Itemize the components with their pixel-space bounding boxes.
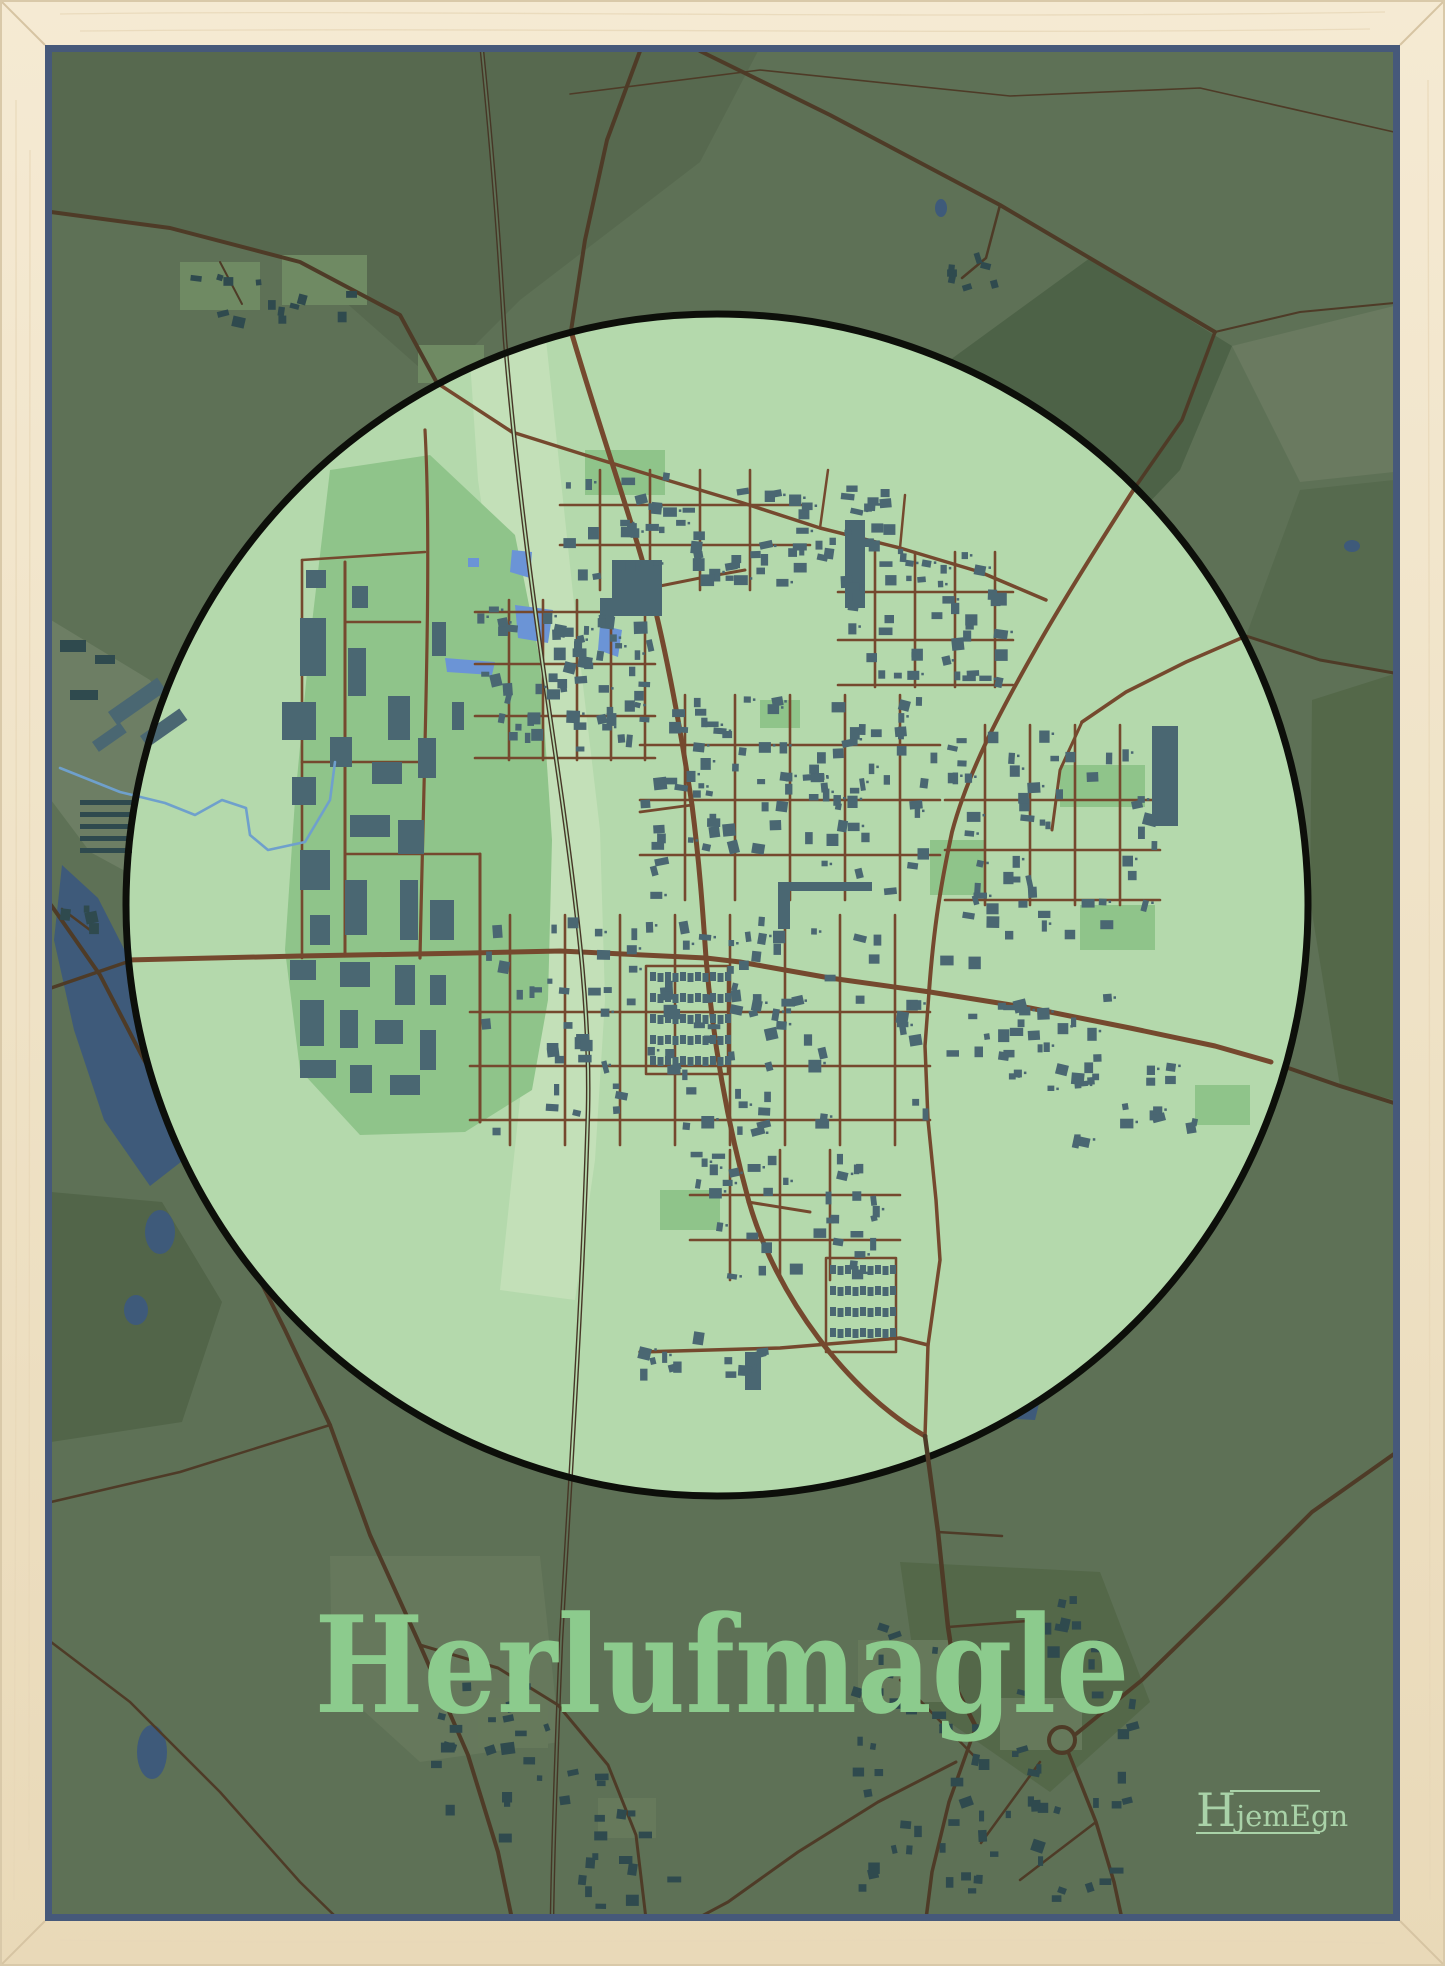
framed-map-poster: Herlufmagle HjemEgn: [0, 0, 1445, 1966]
logo-initial: H: [1196, 1783, 1236, 1837]
poster-title: Herlufmagle: [315, 1586, 1130, 1744]
logo-rest: jemEgn: [1233, 1799, 1348, 1833]
map-canvas: Herlufmagle HjemEgn: [49, 49, 1396, 1919]
poster-svg: Herlufmagle HjemEgn: [0, 0, 1445, 1966]
